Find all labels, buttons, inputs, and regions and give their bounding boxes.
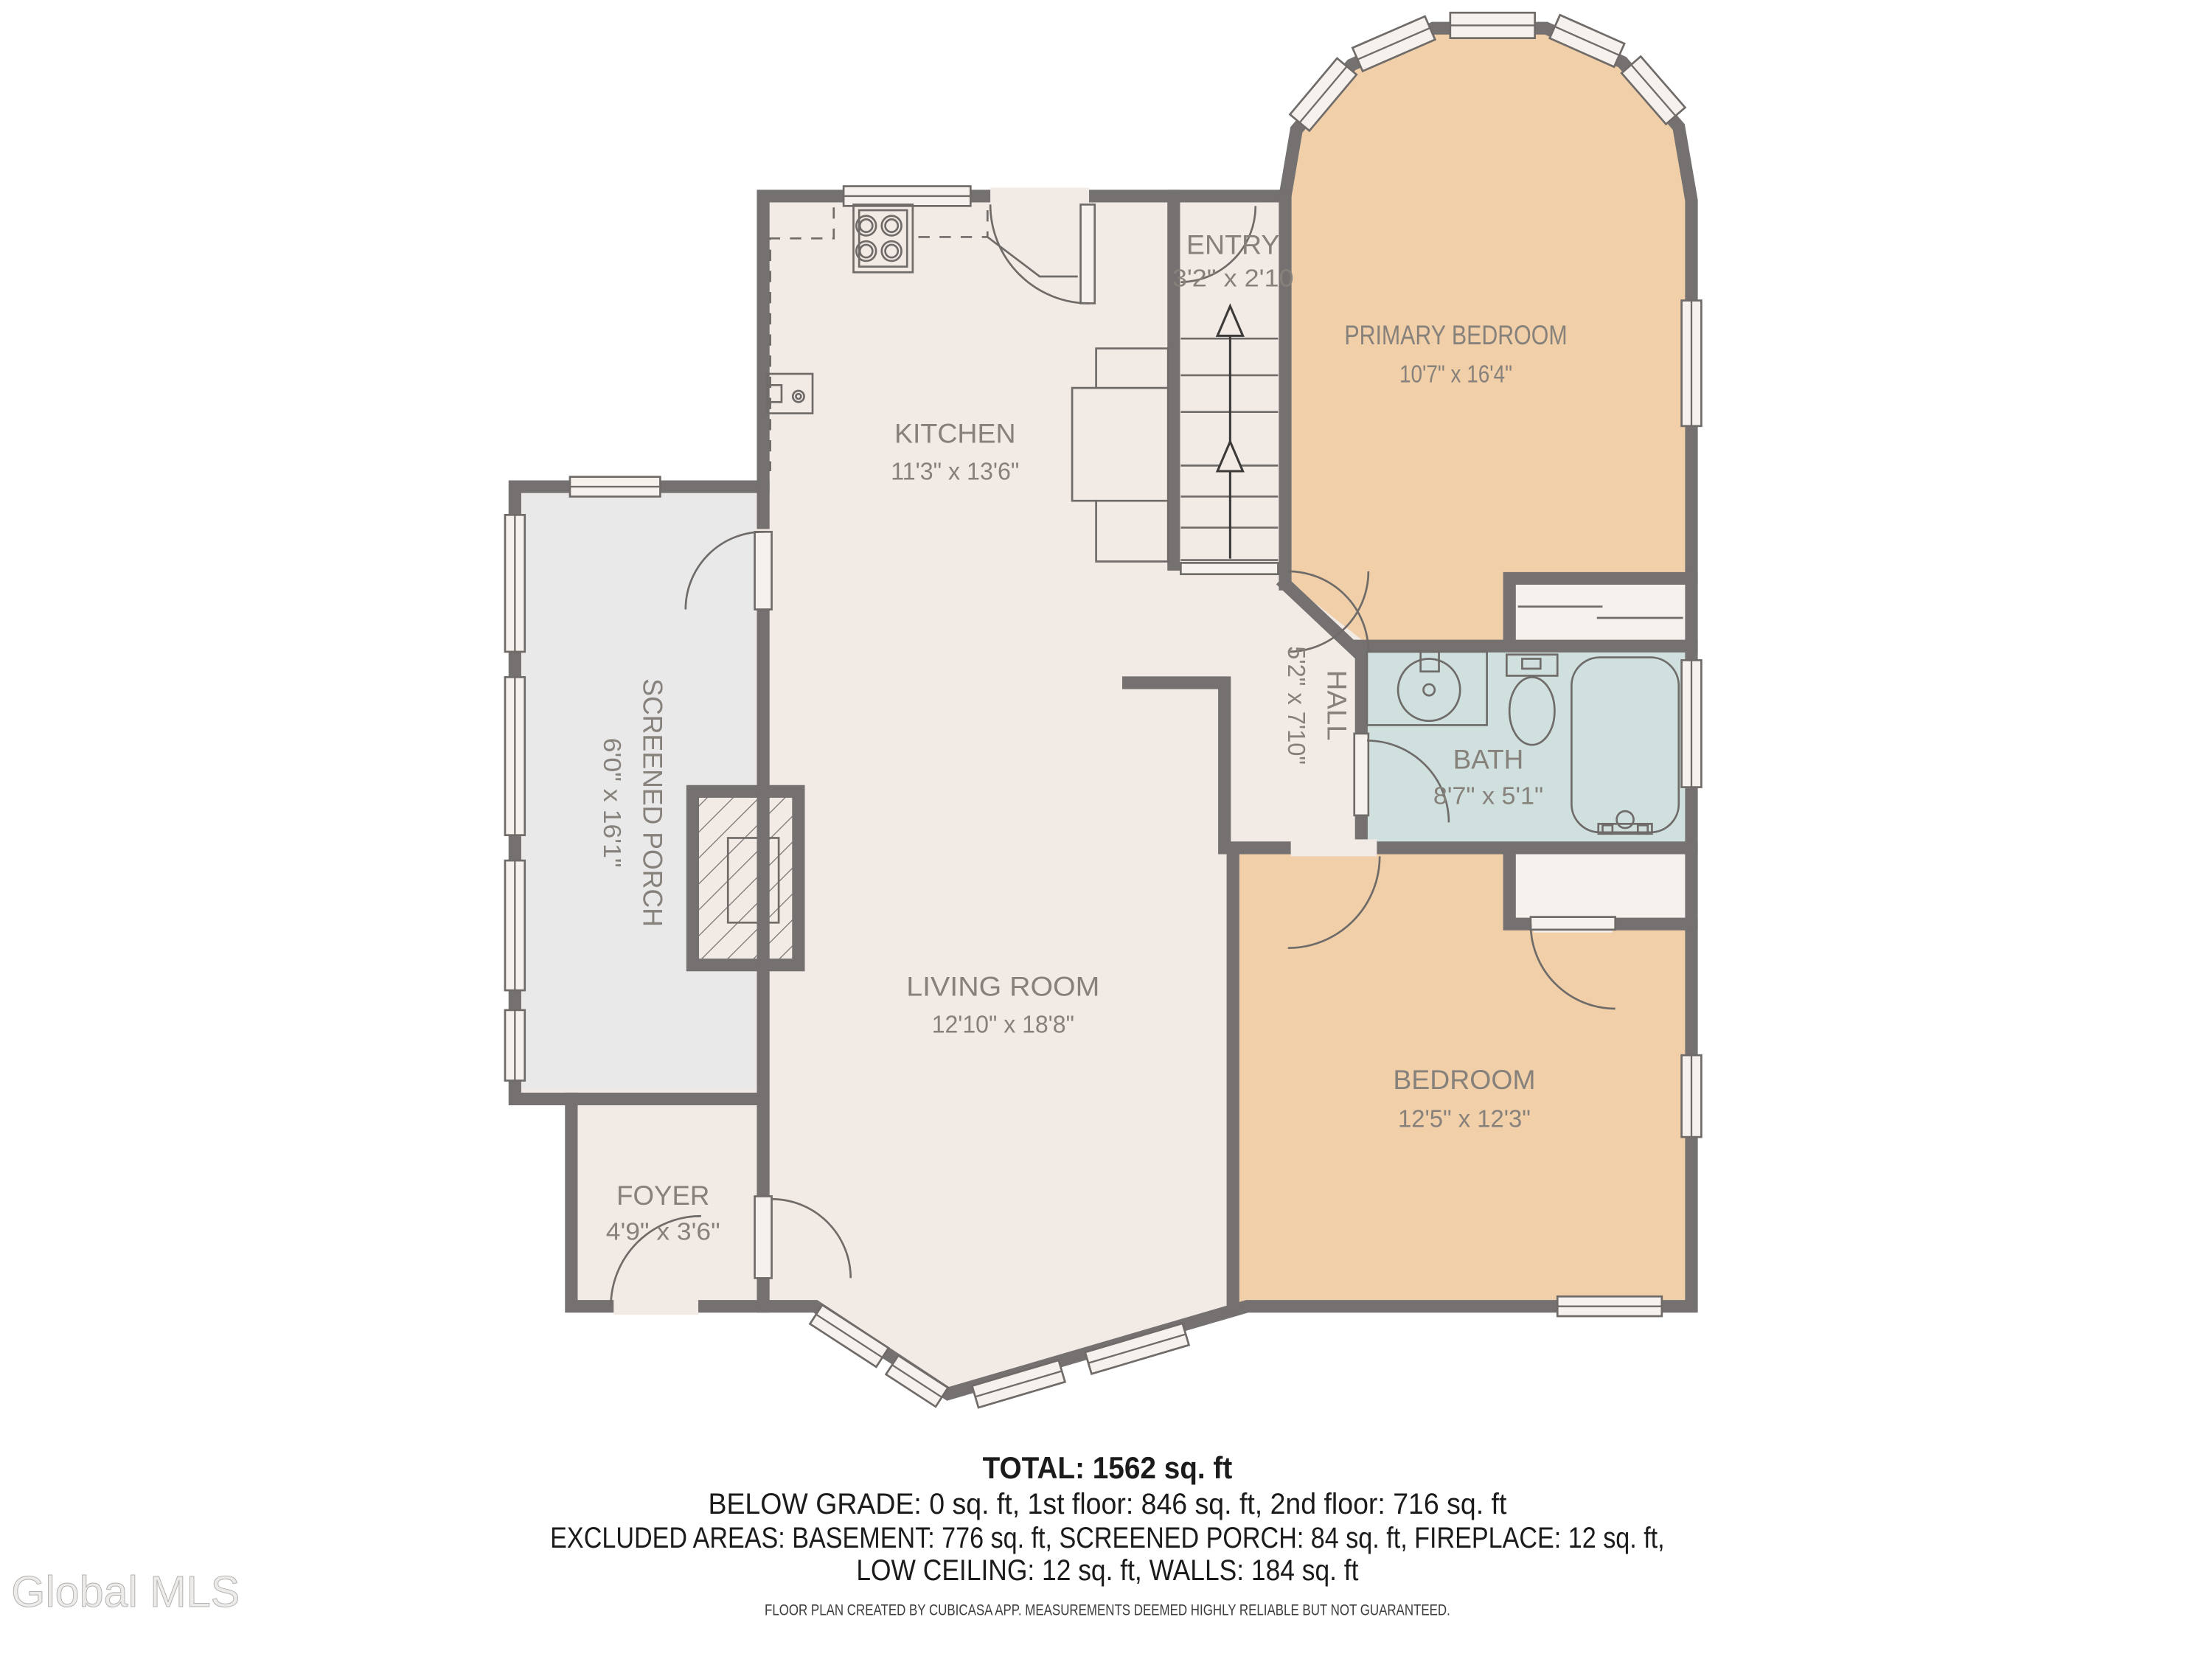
window — [570, 477, 660, 497]
foyer-label: FOYER — [616, 1180, 709, 1211]
total-area: TOTAL: 1562 sq. ft — [983, 1450, 1233, 1485]
screened-porch-label: SCREENED PORCH — [637, 678, 668, 927]
window — [505, 515, 525, 652]
entry-dims: 3'2" x 2'10 — [1172, 265, 1294, 292]
bay-window — [1450, 13, 1535, 38]
bath-dims: 8'7" x 5'1" — [1433, 783, 1543, 810]
excluded-areas-2: LOW CEILING: 12 sq. ft, WALLS: 184 sq. f… — [856, 1554, 1358, 1587]
living-room-dims: 12'10" x 18'8" — [932, 1012, 1074, 1039]
entry-label: ENTRY — [1186, 229, 1279, 260]
primary-bedroom-dims: 10'7" x 16'4" — [1399, 361, 1512, 388]
bath-label: BATH — [1453, 744, 1524, 775]
window — [1557, 1296, 1662, 1316]
window — [1682, 1055, 1702, 1137]
global-mls-watermark: Global MLS — [11, 1567, 240, 1616]
area-summary: TOTAL: 1562 sq. ft BELOW GRADE: 0 sq. ft… — [550, 1450, 1664, 1619]
hall-dims: 5'2" x 7'10" — [1282, 646, 1310, 765]
floor-areas: BELOW GRADE: 0 sq. ft, 1st floor: 846 sq… — [708, 1487, 1506, 1520]
window — [505, 1010, 525, 1081]
foyer-dims: 4'9" x 3'6" — [606, 1219, 720, 1246]
floor-plan: ENTRY 3'2" x 2'10 PRIMARY BEDROOM 10'7" … — [0, 0, 2212, 1659]
window — [1682, 301, 1702, 426]
window — [505, 677, 525, 835]
closet-lower — [1515, 854, 1686, 919]
disclaimer: FLOOR PLAN CREATED BY CUBICASA APP. MEAS… — [765, 1602, 1450, 1619]
bedroom-dims: 12'5" x 12'3" — [1398, 1106, 1531, 1133]
closet-upper — [1515, 584, 1686, 641]
fireplace — [692, 791, 798, 964]
window — [505, 860, 525, 990]
primary-bedroom-label: PRIMARY BEDROOM — [1344, 319, 1567, 350]
window — [844, 187, 970, 206]
bedroom-label: BEDROOM — [1393, 1064, 1535, 1095]
excluded-areas: EXCLUDED AREAS: BASEMENT: 776 sq. ft, SC… — [550, 1521, 1664, 1554]
floor-plan-page: ENTRY 3'2" x 2'10 PRIMARY BEDROOM 10'7" … — [0, 0, 2212, 1659]
bath-floor — [1367, 652, 1686, 842]
window — [1682, 660, 1702, 787]
kitchen-label: KITCHEN — [894, 418, 1016, 449]
living-room-label: LIVING ROOM — [906, 971, 1099, 1002]
hall-label: HALL — [1321, 670, 1352, 741]
screened-porch-dims: 6'0" x 16'1" — [598, 738, 625, 868]
kitchen-dims: 11'3" x 13'6" — [891, 459, 1019, 486]
